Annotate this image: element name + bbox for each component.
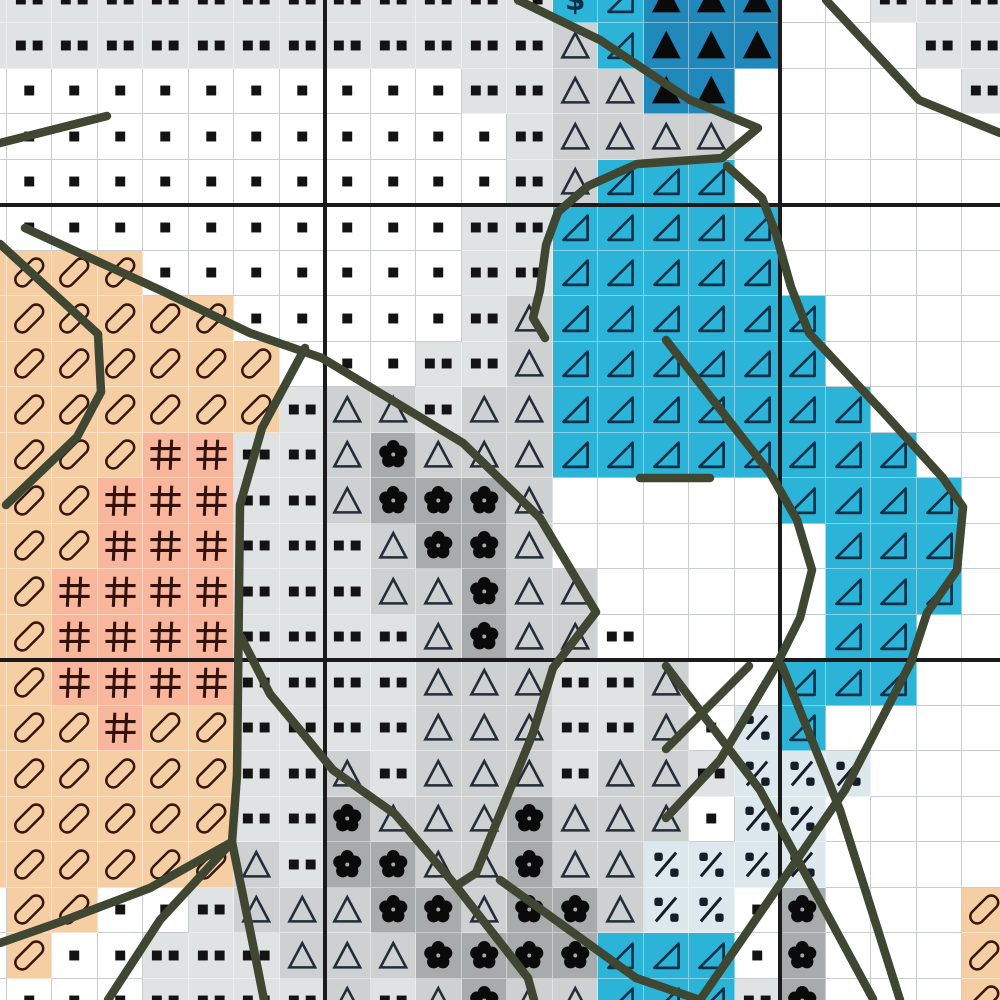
- stitch-cell: [371, 933, 417, 979]
- stitch-cell: [371, 251, 417, 297]
- stitch-cell: [598, 615, 644, 661]
- triangle-symbol: [234, 842, 279, 887]
- stitch-cell: [143, 569, 189, 615]
- percent-symbol: [826, 751, 871, 796]
- dot2-symbol: [234, 796, 279, 841]
- dot1-symbol: [189, 205, 234, 250]
- stitch-cell: [644, 478, 690, 524]
- stitch-cell: [98, 524, 144, 570]
- hash-symbol: [52, 660, 97, 705]
- stitch-cell: [52, 660, 98, 706]
- triangle-symbol: [462, 660, 507, 705]
- stitch-cell: [98, 114, 144, 160]
- stitch-cell: [826, 0, 872, 23]
- right-triangle-symbol: [689, 933, 734, 978]
- dot1-symbol: [98, 68, 143, 113]
- stitch-cell: [507, 569, 553, 615]
- stitch-cell: [416, 842, 462, 888]
- stitch-cell: [553, 114, 599, 160]
- dot2-symbol: [371, 660, 416, 705]
- stitch-cell: [826, 842, 872, 888]
- dot2-symbol: [507, 205, 552, 250]
- stitch-cell: [735, 933, 781, 979]
- stitch-cell: [917, 933, 963, 979]
- oval-symbol: [0, 478, 6, 523]
- oval-symbol: [0, 523, 6, 568]
- stitch-cell: [462, 569, 508, 615]
- triangle-symbol: [507, 523, 552, 568]
- dot2-symbol: [0, 0, 6, 22]
- stitch-cell: [189, 842, 235, 888]
- stitch-cell: [280, 706, 326, 752]
- dot1-symbol: [52, 205, 97, 250]
- right-triangle-symbol: [826, 387, 871, 432]
- dot1-symbol: [0, 159, 6, 204]
- stitch-cell: [7, 751, 53, 797]
- right-triangle-symbol: [553, 432, 598, 477]
- stitch-cell: [52, 569, 98, 615]
- stitch-cell: [371, 615, 417, 661]
- stitch-cell: [917, 615, 963, 661]
- dot1-symbol: [143, 250, 188, 295]
- dot2-symbol: [507, 250, 552, 295]
- stitch-cell: [598, 0, 644, 23]
- stitch-cell: [780, 296, 826, 342]
- stitch-cell: [234, 23, 280, 69]
- stitch-cell: [780, 387, 826, 433]
- stitch-cell: [280, 0, 326, 23]
- dot2-symbol: [280, 569, 325, 614]
- stitch-cell: [780, 69, 826, 115]
- dot1-symbol: [689, 705, 734, 750]
- stitch-cell: [507, 69, 553, 115]
- stitch-cell: [962, 251, 1000, 297]
- stitch-cell: [7, 0, 53, 23]
- oval-symbol: [7, 705, 52, 750]
- dot1-symbol: [416, 296, 461, 341]
- stitch-cell: [826, 296, 872, 342]
- stitch-cell: [280, 296, 326, 342]
- stitch-cell: [371, 296, 417, 342]
- stitch-cell: [917, 205, 963, 251]
- right-triangle-symbol: [735, 205, 780, 250]
- dot1-symbol: [325, 341, 370, 386]
- hash-symbol: [189, 569, 234, 614]
- oval-symbol: [7, 933, 52, 978]
- stitch-cell: [735, 706, 781, 752]
- triangle-symbol: [325, 978, 370, 1000]
- dot1-symbol: [234, 68, 279, 113]
- oval-symbol: [0, 432, 6, 477]
- dot1-symbol: [416, 159, 461, 204]
- dot1-symbol: [143, 114, 188, 159]
- stitch-cell: [143, 433, 189, 479]
- dot2-symbol: [371, 0, 416, 22]
- filled-triangle-symbol: [689, 23, 734, 68]
- oval-symbol: [98, 432, 143, 477]
- oval-symbol: [52, 796, 97, 841]
- stitch-cell: [598, 69, 644, 115]
- stitch-cell: [416, 478, 462, 524]
- stitch-cell: [780, 706, 826, 752]
- stitch-cell: [325, 342, 371, 388]
- stitch-cell: [7, 251, 53, 297]
- stitch-cell: [826, 933, 872, 979]
- triangle-symbol: [416, 614, 461, 659]
- stitch-cell: [871, 706, 917, 752]
- dot1-symbol: [189, 114, 234, 159]
- dot2-symbol: [280, 842, 325, 887]
- stitch-cell: [553, 69, 599, 115]
- stitch-cell: [280, 569, 326, 615]
- percent-symbol: [689, 887, 734, 932]
- stitch-cell: [689, 842, 735, 888]
- triangle-symbol: [280, 933, 325, 978]
- triangle-symbol: [598, 114, 643, 159]
- oval-symbol: [0, 751, 6, 796]
- stitch-cell: [371, 888, 417, 934]
- dot1-symbol: [7, 68, 52, 113]
- stitch-cell: [462, 433, 508, 479]
- stitch-cell: [507, 706, 553, 752]
- stitch-cell: [553, 251, 599, 297]
- stitch-cell: [462, 0, 508, 23]
- stitch-cell: [735, 251, 781, 297]
- oval-symbol: [52, 751, 97, 796]
- right-triangle-symbol: [644, 387, 689, 432]
- dot1-symbol: [371, 341, 416, 386]
- stitch-cell: [826, 569, 872, 615]
- dot2-symbol: [143, 978, 188, 1000]
- florette-symbol: [416, 933, 461, 978]
- stitch-cell: [644, 933, 690, 979]
- florette-symbol: [780, 887, 825, 932]
- stitch-cell: [644, 524, 690, 570]
- stitch-cell: [735, 296, 781, 342]
- stitch-cell: [416, 342, 462, 388]
- dot2-symbol: [462, 205, 507, 250]
- oval-symbol: [7, 887, 52, 932]
- stitch-cell: [962, 751, 1000, 797]
- stitch-cell: [598, 888, 644, 934]
- dot1-symbol: [234, 159, 279, 204]
- dot2-symbol: [462, 296, 507, 341]
- oval-symbol: [0, 341, 6, 386]
- dot2-symbol: [280, 478, 325, 523]
- stitch-cell: [826, 433, 872, 479]
- triangle-symbol: [462, 387, 507, 432]
- right-triangle-symbol: [871, 432, 916, 477]
- stitch-cell: [143, 0, 189, 23]
- stitch-cell: [98, 979, 144, 1000]
- stitch-cell: [598, 524, 644, 570]
- dot2-symbol: [143, 933, 188, 978]
- stitch-cell: [962, 296, 1000, 342]
- stitch-cell: [280, 114, 326, 160]
- triangle-symbol: [507, 478, 552, 523]
- stitch-cell: [234, 160, 280, 206]
- right-triangle-symbol: [826, 432, 871, 477]
- hash-symbol: [189, 432, 234, 477]
- dot2-symbol: [189, 933, 234, 978]
- stitch-cell: [871, 933, 917, 979]
- stitch-cell: [826, 114, 872, 160]
- oval-symbol: [7, 796, 52, 841]
- dot1-symbol: [7, 205, 52, 250]
- stitch-cell: [52, 387, 98, 433]
- dot2-symbol: [234, 614, 279, 659]
- right-triangle-symbol: [917, 569, 962, 614]
- stitch-cell: [826, 23, 872, 69]
- stitch-cell: [52, 205, 98, 251]
- stitch-cell: [553, 569, 599, 615]
- oval-symbol: [143, 387, 188, 432]
- stitch-cell: [917, 342, 963, 388]
- percent-symbol: [780, 751, 825, 796]
- triangle-symbol: [416, 842, 461, 887]
- stitch-cell: [280, 205, 326, 251]
- stitch-cell: [507, 524, 553, 570]
- stitch-cell: [416, 0, 462, 23]
- stitch-cell: [598, 114, 644, 160]
- stitch-cell: [52, 160, 98, 206]
- stitch-cell: [553, 524, 599, 570]
- dot2-symbol: [280, 751, 325, 796]
- oval-symbol: [143, 705, 188, 750]
- stitch-cell: [689, 615, 735, 661]
- right-triangle-symbol: [553, 341, 598, 386]
- right-triangle-symbol: [598, 0, 643, 22]
- stitch-cell: [462, 387, 508, 433]
- stitch-cell: [7, 114, 53, 160]
- right-triangle-symbol: [780, 660, 825, 705]
- stitch-cell: [826, 797, 872, 843]
- oval-symbol: [0, 296, 6, 341]
- stitch-cell: [52, 524, 98, 570]
- stitch-cell: [826, 979, 872, 1000]
- stitch-cell: [234, 0, 280, 23]
- stitch-cell: [325, 251, 371, 297]
- oval-symbol: [189, 842, 234, 887]
- stitch-cell: [962, 660, 1000, 706]
- oval-symbol: [143, 751, 188, 796]
- stitch-cell: [644, 751, 690, 797]
- triangle-symbol: [507, 341, 552, 386]
- stitch-cell: [98, 842, 144, 888]
- stitch-cell: [325, 706, 371, 752]
- dot1-symbol: [280, 250, 325, 295]
- dot1-symbol: [416, 114, 461, 159]
- dot2-symbol: [507, 23, 552, 68]
- stitch-cell: [962, 569, 1000, 615]
- stitch-cell: [189, 342, 235, 388]
- stitch-cell: [189, 615, 235, 661]
- stitch-cell: [507, 751, 553, 797]
- percent-symbol: [735, 796, 780, 841]
- filled-triangle-symbol: [689, 68, 734, 113]
- stitch-cell: [735, 69, 781, 115]
- stitch-cell: [917, 69, 963, 115]
- stitch-cell: [598, 933, 644, 979]
- stitch-cell: [689, 524, 735, 570]
- triangle-symbol: [553, 68, 598, 113]
- hash-symbol: [189, 660, 234, 705]
- stitch-cell: [7, 660, 53, 706]
- dot2-symbol: [189, 23, 234, 68]
- stitch-cell: [462, 114, 508, 160]
- stitch-cell: [234, 524, 280, 570]
- triangle-symbol: [553, 614, 598, 659]
- dot1-symbol: [189, 68, 234, 113]
- stitch-cell: [189, 0, 235, 23]
- stitch-cell: [98, 933, 144, 979]
- stitch-cell: [962, 0, 1000, 23]
- stitch-cell: [826, 888, 872, 934]
- right-triangle-symbol: [553, 296, 598, 341]
- stitch-cell: [735, 433, 781, 479]
- oval-symbol: [143, 341, 188, 386]
- stitch-cell: [507, 205, 553, 251]
- stitch-cell: [280, 478, 326, 524]
- stitch-cell: [325, 660, 371, 706]
- oval-symbol: [143, 296, 188, 341]
- oval-symbol: [52, 250, 97, 295]
- stitch-cell: [234, 387, 280, 433]
- right-triangle-symbol: [871, 660, 916, 705]
- hash-symbol: [98, 705, 143, 750]
- dot1-symbol: [280, 159, 325, 204]
- stitch-cell: [234, 933, 280, 979]
- stitch-cell: [416, 888, 462, 934]
- stitch-cell: [462, 342, 508, 388]
- stitch-cell: [143, 23, 189, 69]
- stitch-cell: [143, 160, 189, 206]
- right-triangle-symbol: [644, 250, 689, 295]
- stitch-cell: [962, 478, 1000, 524]
- stitch-cell: [7, 888, 53, 934]
- triangle-symbol: [644, 705, 689, 750]
- stitch-cell: [7, 23, 53, 69]
- dot1-symbol: [143, 68, 188, 113]
- dot2-symbol: [598, 660, 643, 705]
- stitch-cell: [462, 160, 508, 206]
- dot2-symbol: [416, 23, 461, 68]
- stitch-cell: [371, 114, 417, 160]
- oval-symbol: [98, 751, 143, 796]
- dot1-symbol: [234, 250, 279, 295]
- stitch-cell: [52, 842, 98, 888]
- right-triangle-symbol: [598, 432, 643, 477]
- dot1-symbol: [416, 250, 461, 295]
- stitch-cell: [143, 478, 189, 524]
- stitch-cell: [871, 524, 917, 570]
- stitch-cell: [598, 23, 644, 69]
- stitch-cell: [234, 660, 280, 706]
- stitch-cell: [780, 478, 826, 524]
- stitch-cell: [689, 23, 735, 69]
- stitch-cell: [98, 615, 144, 661]
- dot2-symbol: [325, 660, 370, 705]
- stitch-cell: [871, 23, 917, 69]
- stitch-cell: [917, 23, 963, 69]
- hash-symbol: [98, 614, 143, 659]
- stitch-cell: [689, 433, 735, 479]
- oval-symbol: [0, 250, 6, 295]
- stitch-cell: [689, 706, 735, 752]
- percent-symbol: [780, 842, 825, 887]
- oval-symbol: [0, 569, 6, 614]
- stitch-cell: [7, 433, 53, 479]
- dot1-symbol: [462, 114, 507, 159]
- stitch-cell: [325, 160, 371, 206]
- stitch-cell: [735, 478, 781, 524]
- hash-symbol: [52, 614, 97, 659]
- stitch-cell: [325, 979, 371, 1000]
- stitch-cell: [416, 433, 462, 479]
- right-triangle-symbol: [780, 296, 825, 341]
- triangle-symbol: [507, 432, 552, 477]
- stitch-cell: [871, 296, 917, 342]
- dot1-symbol: [7, 114, 52, 159]
- triangle-symbol: [371, 523, 416, 568]
- stitch-cell: [325, 296, 371, 342]
- stitch-cell: [416, 114, 462, 160]
- dot1-symbol: [0, 68, 6, 113]
- dot2-symbol: [507, 0, 552, 22]
- dot2-symbol: [234, 933, 279, 978]
- stitch-cell: [917, 888, 963, 934]
- stitch-cell: [416, 387, 462, 433]
- stitch-cell: [553, 342, 599, 388]
- stitch-cell: [871, 751, 917, 797]
- stitch-cell: [553, 933, 599, 979]
- filled-triangle-symbol: [644, 68, 689, 113]
- stitch-cell: [962, 114, 1000, 160]
- stitch-cell: [189, 751, 235, 797]
- stitch-cell: [234, 615, 280, 661]
- triangle-symbol: [371, 387, 416, 432]
- stitch-cell: [780, 569, 826, 615]
- dot2-symbol: [234, 432, 279, 477]
- stitch-cell: [598, 569, 644, 615]
- stitch-cell: [780, 0, 826, 23]
- stitch-cell: [826, 342, 872, 388]
- stitch-cell: [416, 797, 462, 843]
- stitch-cell: [280, 842, 326, 888]
- dot2-symbol: [507, 68, 552, 113]
- dot1-symbol: [98, 887, 143, 932]
- triangle-symbol: [462, 751, 507, 796]
- florette-symbol: [371, 842, 416, 887]
- stitch-cell: [52, 296, 98, 342]
- stitch-cell: [462, 706, 508, 752]
- right-triangle-symbol: [780, 387, 825, 432]
- dot1-symbol: [143, 887, 188, 932]
- triangle-symbol: [598, 68, 643, 113]
- dot2-symbol: [553, 705, 598, 750]
- oval-symbol: [189, 751, 234, 796]
- oval-symbol: [962, 978, 1000, 1000]
- stitch-cell: [189, 660, 235, 706]
- stitch-cell: [507, 296, 553, 342]
- stitch-cell: [735, 524, 781, 570]
- stitch-cell: [780, 933, 826, 979]
- dot2-symbol: [280, 978, 325, 1000]
- right-triangle-symbol: [598, 387, 643, 432]
- dot1-symbol: [371, 114, 416, 159]
- dot2-symbol: [234, 978, 279, 1000]
- right-triangle-symbol: [826, 660, 871, 705]
